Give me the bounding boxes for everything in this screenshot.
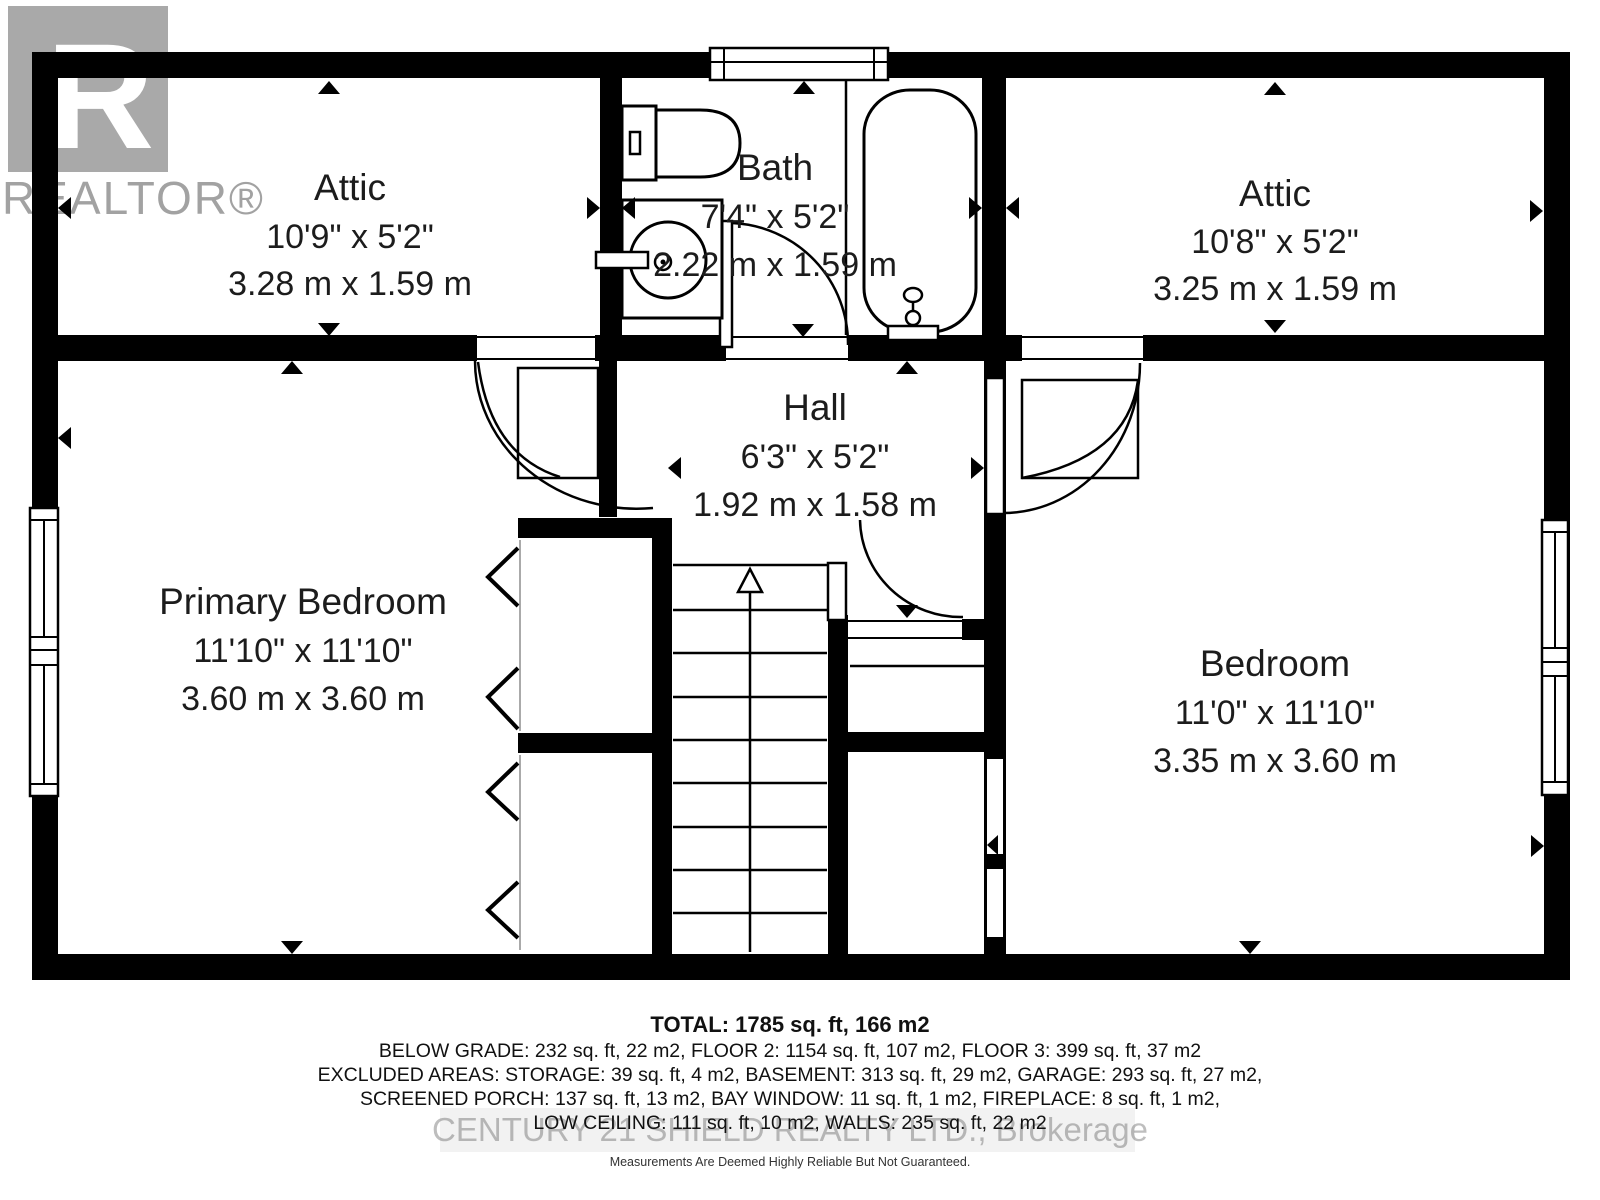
stairs-up-arrow bbox=[738, 569, 762, 592]
bedroom-window bbox=[1542, 520, 1568, 795]
primary-bedroom-metric: 3.60 m x 3.60 m bbox=[181, 680, 425, 718]
attic-right-imperial: 10'8" x 5'2" bbox=[1191, 223, 1359, 261]
attic-left-metric: 3.28 m x 1.59 m bbox=[228, 265, 472, 303]
bath-imperial: 7'4" x 5'2" bbox=[701, 198, 850, 236]
primary-bedroom-window bbox=[30, 508, 58, 796]
summary-line3: SCREENED PORCH: 137 sq. ft, 13 m2, BAY W… bbox=[360, 1088, 1220, 1110]
summary-disclaimer: Measurements Are Deemed Highly Reliable … bbox=[610, 1155, 971, 1169]
floorplan-page: R REALTOR® bbox=[0, 0, 1600, 1200]
bath-window bbox=[710, 48, 888, 80]
hall-name: Hall bbox=[783, 387, 847, 428]
floorplan-drawing: R REALTOR® bbox=[0, 0, 1600, 1200]
primary-bedroom-name: Primary Bedroom bbox=[159, 581, 447, 622]
summary-line1: BELOW GRADE: 232 sq. ft, 22 m2, FLOOR 2:… bbox=[379, 1040, 1201, 1062]
room-label-attic-right: Attic 10'8" x 5'2" 3.25 m x 1.59 m bbox=[1153, 173, 1397, 308]
hall-imperial: 6'3" x 5'2" bbox=[741, 438, 890, 476]
attic-left-imperial: 10'9" x 5'2" bbox=[266, 218, 434, 256]
hall-metric: 1.92 m x 1.58 m bbox=[693, 486, 937, 524]
room-label-bedroom: Bedroom 11'0" x 11'10" 3.35 m x 3.60 m bbox=[1153, 643, 1397, 780]
door-leaf-bedroom bbox=[986, 378, 1004, 514]
summary-total: TOTAL: 1785 sq. ft, 166 m2 bbox=[650, 1012, 929, 1037]
bedroom-name: Bedroom bbox=[1200, 643, 1350, 684]
door-bath bbox=[720, 221, 848, 347]
bedroom-imperial: 11'0" x 11'10" bbox=[1175, 694, 1375, 732]
bathtub bbox=[846, 80, 976, 340]
bedroom-metric: 3.35 m x 3.60 m bbox=[1153, 742, 1397, 780]
bath-metric: 2.22 m x 1.59 m bbox=[653, 246, 897, 284]
realtor-logo-r: R bbox=[46, 12, 154, 180]
summary-line2: EXCLUDED AREAS: STORAGE: 39 sq. ft, 4 m2… bbox=[318, 1064, 1263, 1086]
attic-right-name: Attic bbox=[1239, 173, 1311, 214]
summary-line4: LOW CEILING: 111 sq. ft, 10 m2, WALLS: 2… bbox=[533, 1112, 1046, 1134]
primary-bedroom-imperial: 11'10" x 11'10" bbox=[193, 632, 412, 670]
attic-left-name: Attic bbox=[314, 167, 386, 208]
door-hall-closet bbox=[828, 520, 963, 620]
attic-right-metric: 3.25 m x 1.59 m bbox=[1153, 270, 1397, 308]
room-label-hall: Hall 6'3" x 5'2" 1.92 m x 1.58 m bbox=[693, 387, 937, 524]
room-label-primary-bedroom: Primary Bedroom 11'10" x 11'10" 3.60 m x… bbox=[159, 581, 447, 718]
door-attic-right bbox=[986, 363, 1140, 514]
door-attic-left bbox=[475, 360, 653, 509]
toilet bbox=[622, 106, 740, 180]
staircase bbox=[673, 565, 827, 952]
bath-name: Bath bbox=[737, 147, 813, 188]
